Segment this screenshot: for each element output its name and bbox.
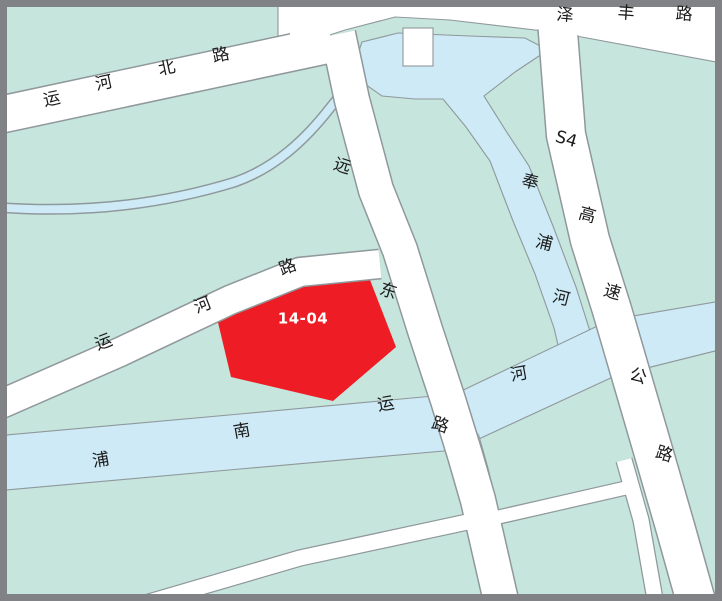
planning-map: 运河北路泽丰路远东路S4高速公路奉浦河运河路浦南运河14-04 — [0, 0, 722, 601]
map-canvas — [0, 0, 722, 601]
bridge-notch — [403, 28, 433, 66]
